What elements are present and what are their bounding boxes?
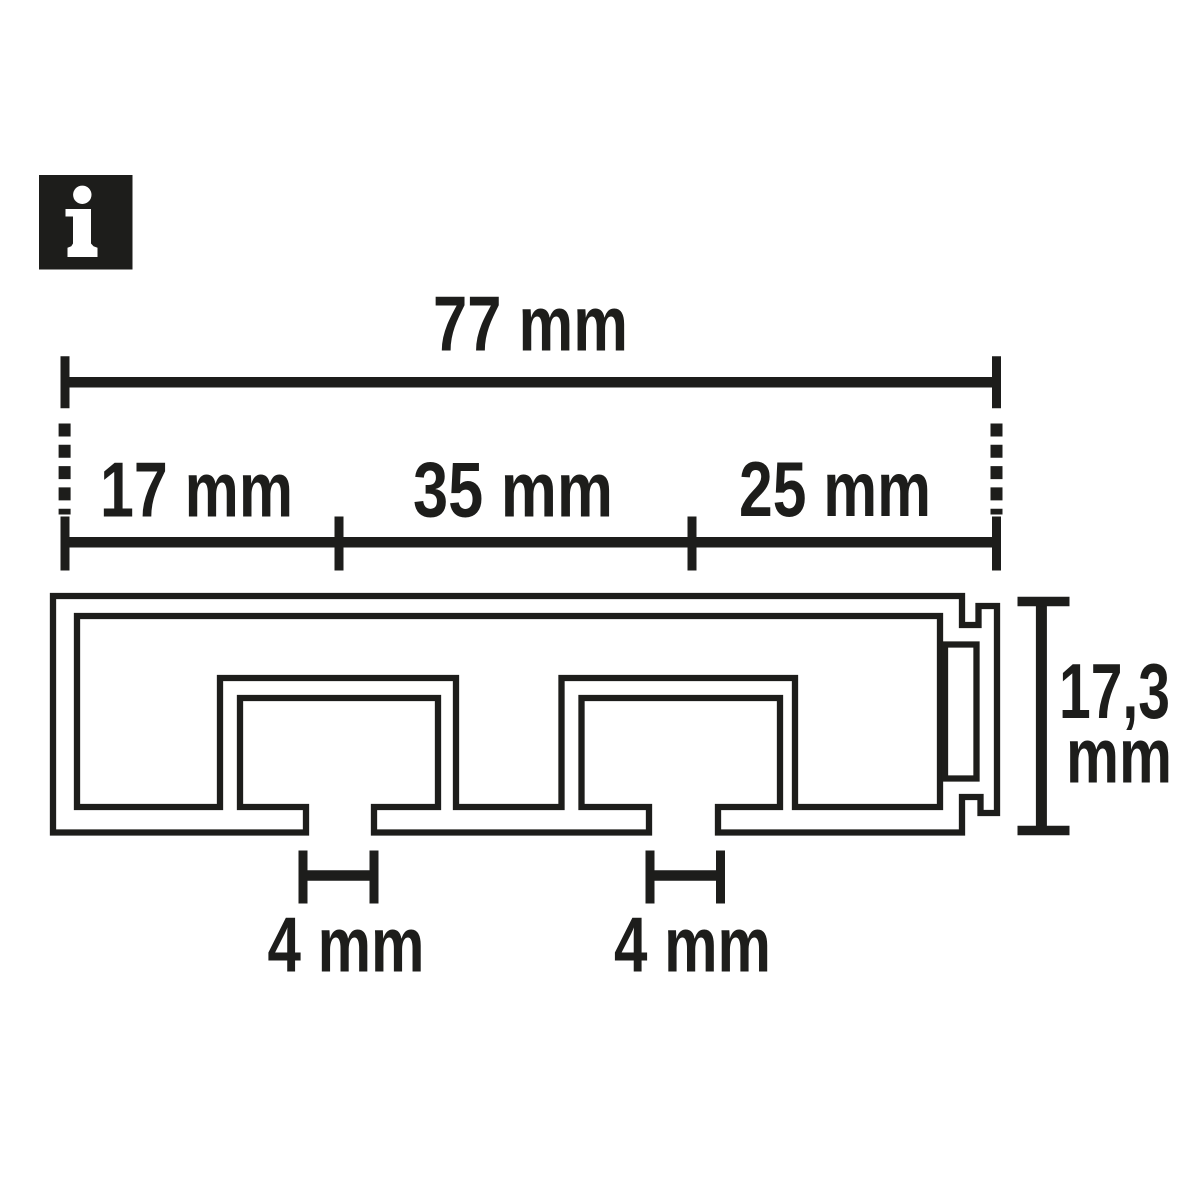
svg-text:25 mm: 25 mm <box>739 447 931 533</box>
svg-text:17 mm: 17 mm <box>100 447 293 533</box>
svg-text:4 mm: 4 mm <box>268 903 425 989</box>
svg-text:4 mm: 4 mm <box>614 903 771 989</box>
svg-text:35 mm: 35 mm <box>413 448 613 534</box>
svg-text:mm: mm <box>1066 713 1172 799</box>
svg-text:77 mm: 77 mm <box>433 282 628 368</box>
